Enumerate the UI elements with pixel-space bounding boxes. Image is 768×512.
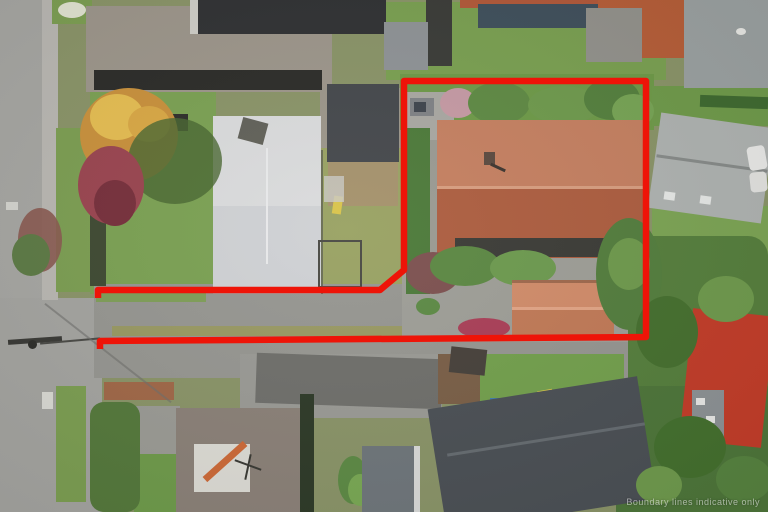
roof-garage-lower	[512, 309, 614, 337]
bush-magenta	[458, 318, 510, 338]
weed-strip-driveway	[112, 326, 402, 336]
car-white-2	[749, 171, 768, 193]
roof-gray-hip-ne	[684, 0, 768, 88]
fence-black-row	[94, 70, 322, 90]
deck-blue-top-neighbor	[478, 4, 600, 28]
foliage-bottom-left	[90, 402, 140, 512]
grass-strip-driveway-left	[96, 290, 206, 302]
path-bottom-left	[134, 406, 180, 454]
asphalt-dark-lane	[255, 353, 443, 409]
tree-inside-east-highlight	[608, 238, 650, 290]
shed-dark-left	[327, 84, 399, 162]
roof-main-house-upper	[437, 120, 649, 188]
shrub-courtyard	[416, 298, 440, 315]
tree-se-4	[716, 456, 768, 502]
watermark-text: Boundary lines indicative only	[626, 497, 760, 507]
car-white-1	[746, 145, 768, 172]
road-marking-2	[6, 202, 18, 210]
grass-berm-left-lower	[56, 386, 86, 502]
skylight-east-2	[699, 195, 711, 204]
ridge-white-house	[266, 148, 268, 264]
bench-garden-dark	[414, 102, 426, 112]
flowers-white-corner	[58, 2, 86, 18]
power-pole	[28, 340, 37, 349]
parapet-black-roof	[190, 0, 198, 34]
hedge-dark-bottom-center	[300, 394, 314, 512]
tree-left-edge-green	[12, 234, 50, 276]
road-marking-1	[42, 392, 53, 409]
bush-green-1	[468, 82, 530, 124]
ridge-main-house	[437, 186, 649, 189]
shed-bc-white-edge	[414, 446, 420, 512]
vent-ne-roof	[736, 28, 746, 35]
tree-se-1	[636, 296, 698, 368]
deck-roof-dark-bc	[449, 346, 488, 376]
shed-bottom-center	[362, 446, 418, 512]
aerial-photo-stage: Boundary lines indicative only	[0, 0, 768, 512]
hedge-ne	[700, 95, 768, 109]
trampoline-frame	[318, 240, 362, 288]
deck-white-bits	[324, 176, 344, 202]
skylight-east-1	[663, 191, 675, 200]
roof-black-top-neighbor	[196, 0, 386, 34]
carport-dark-top	[426, 0, 452, 66]
tree-crimson-dark	[94, 180, 136, 226]
eave-white-house	[213, 290, 321, 294]
shed-gray-top-left	[384, 22, 428, 70]
skylight-se-1	[696, 398, 705, 405]
ridge-garage	[512, 307, 614, 310]
tree-se-2	[698, 276, 754, 322]
wall-gray-annex-top	[586, 8, 642, 62]
